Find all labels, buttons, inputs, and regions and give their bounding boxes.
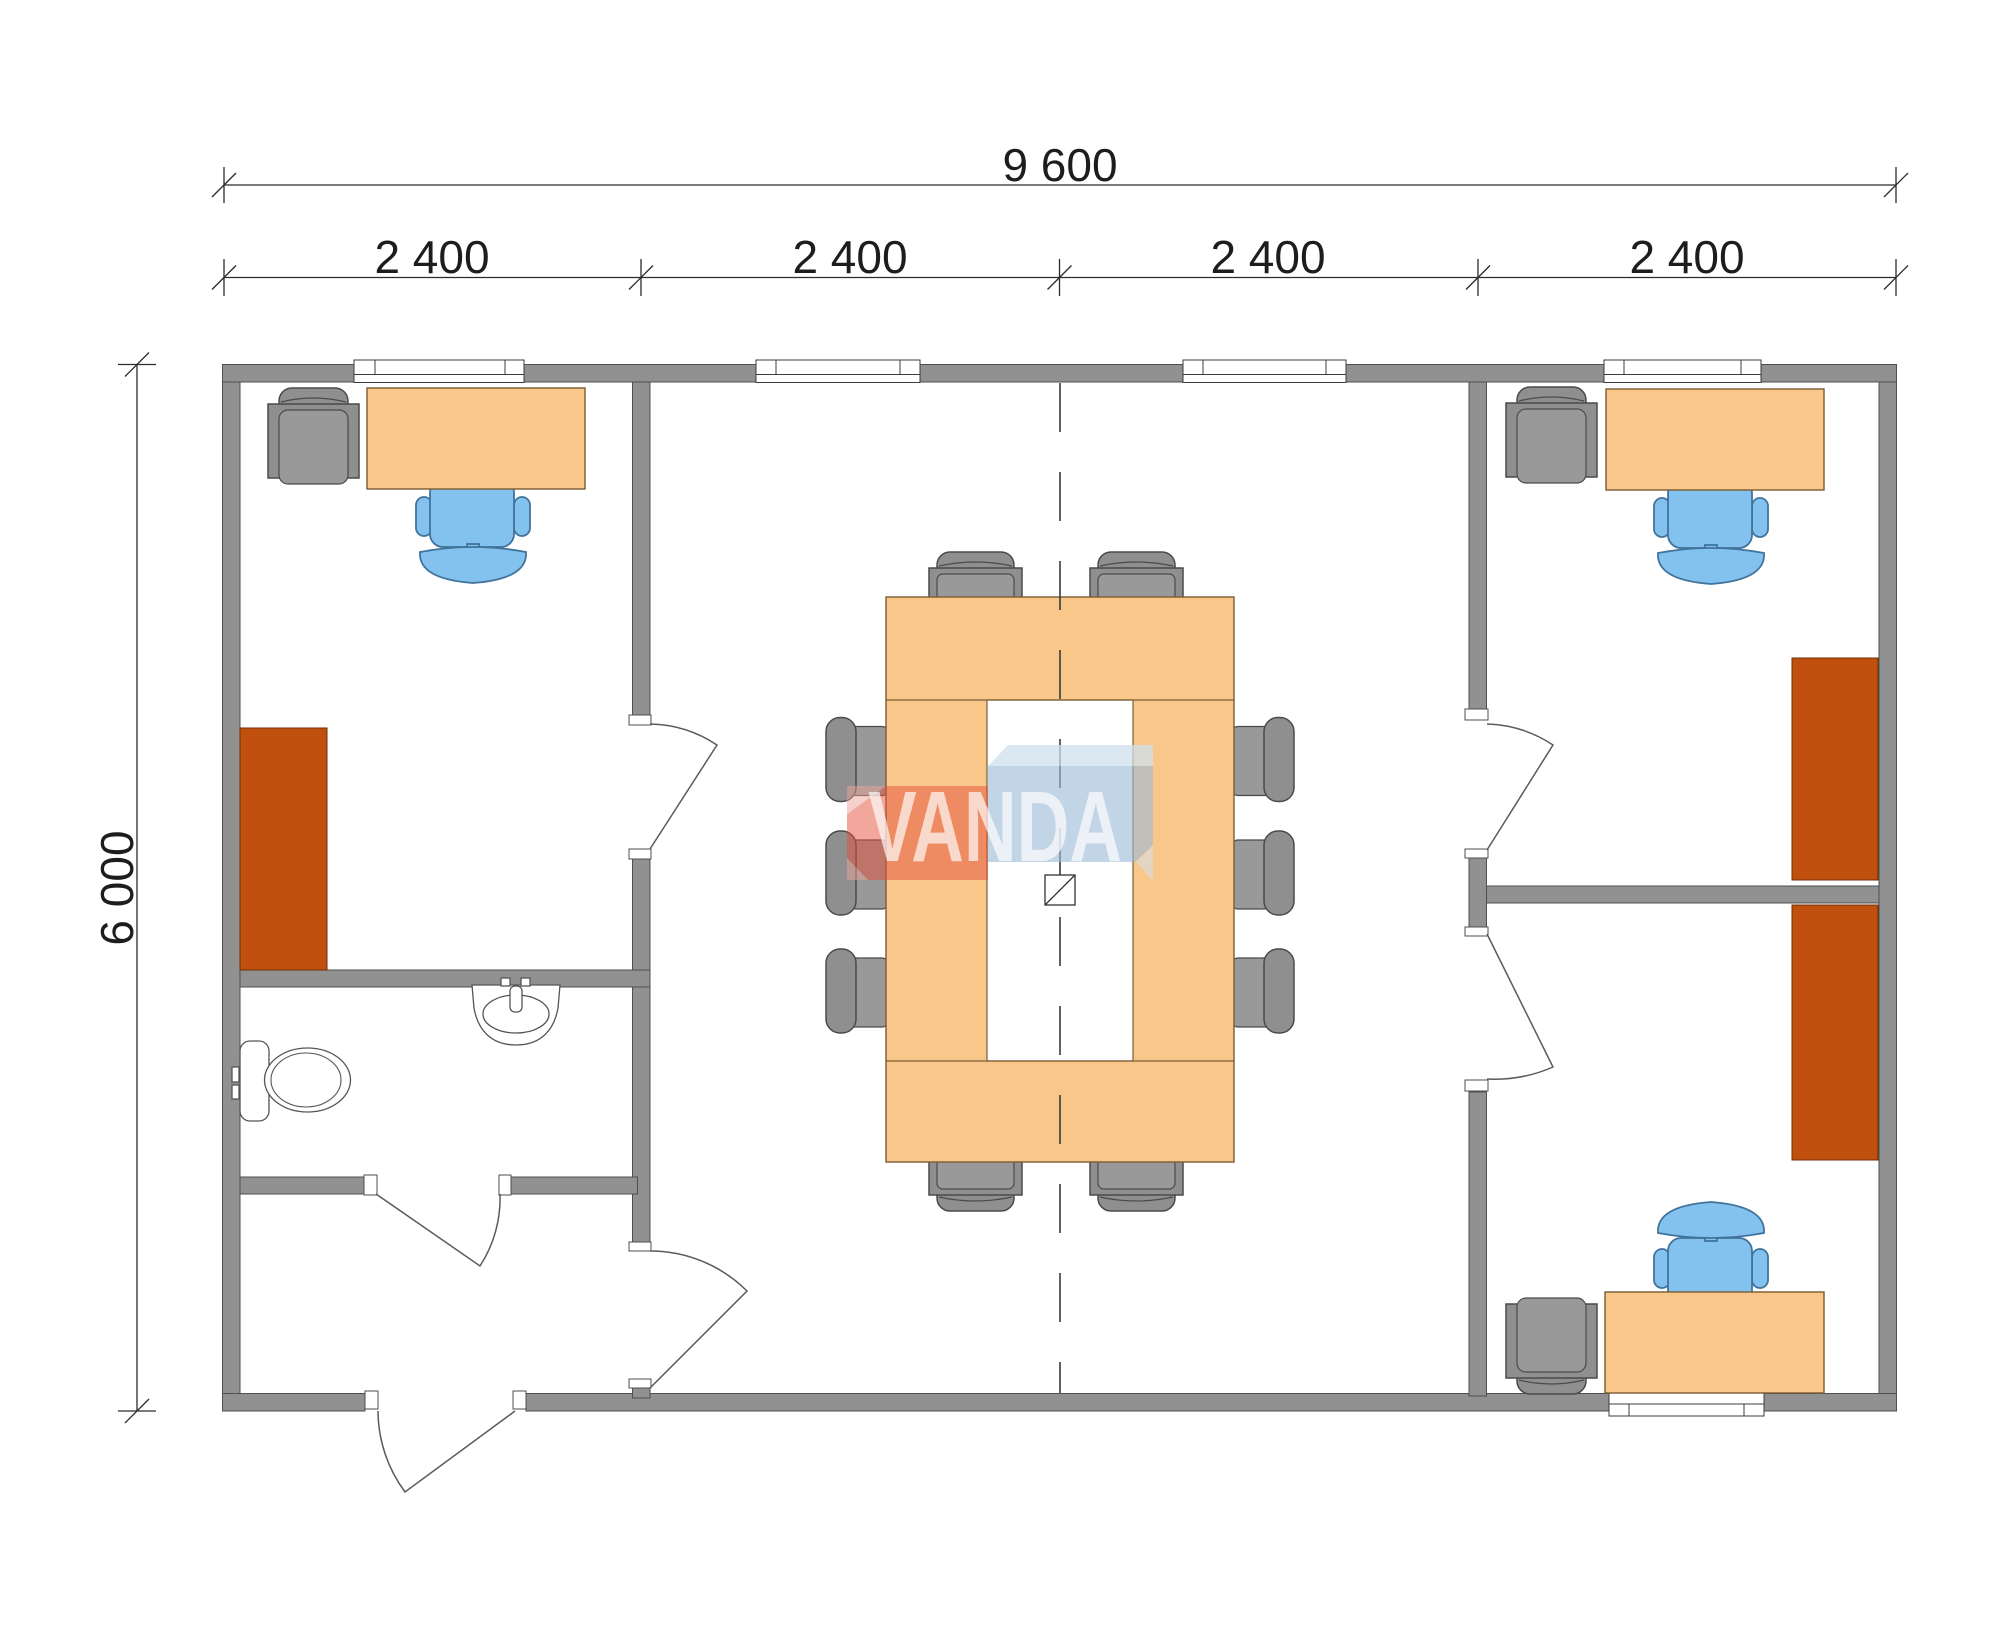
svg-text:VANDA: VANDA (868, 771, 1122, 883)
svg-text:2 400: 2 400 (1210, 231, 1325, 283)
svg-text:2 400: 2 400 (1629, 231, 1744, 283)
svg-text:2 400: 2 400 (374, 231, 489, 283)
svg-text:2 400: 2 400 (792, 231, 907, 283)
svg-text:6 000: 6 000 (91, 830, 143, 945)
svg-text:9 600: 9 600 (1002, 139, 1117, 191)
